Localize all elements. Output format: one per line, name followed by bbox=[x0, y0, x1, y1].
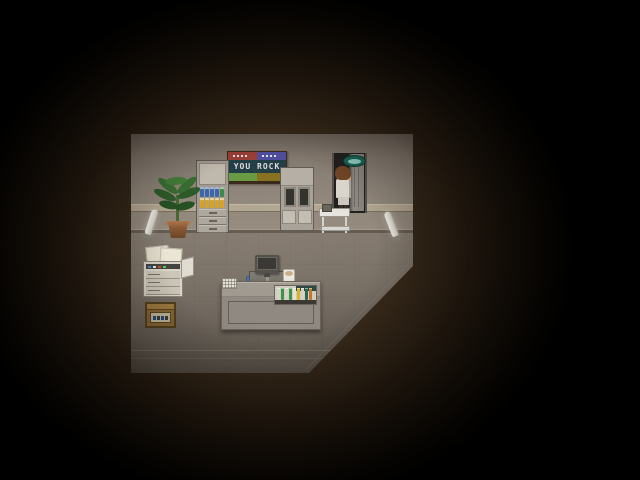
copier-btn bbox=[148, 266, 151, 268]
banner-red-cell bbox=[228, 152, 257, 160]
banner-blue-cell bbox=[257, 152, 286, 160]
shelf-drawer bbox=[199, 217, 226, 225]
banner-small-text-marks bbox=[233, 155, 249, 157]
scientist-character[interactable] bbox=[334, 166, 353, 214]
bottle bbox=[215, 187, 219, 197]
monitor-screen bbox=[257, 257, 277, 270]
game-viewport[interactable]: YOU ROCK bbox=[0, 0, 640, 480]
mug-contents bbox=[285, 271, 293, 276]
cabinet-panel bbox=[282, 210, 296, 224]
tube bbox=[277, 288, 280, 300]
bottle bbox=[215, 198, 219, 208]
cart-shelf bbox=[321, 226, 350, 231]
shelf-drawer bbox=[199, 225, 226, 233]
bottle bbox=[220, 187, 224, 197]
cabinet-lower-panels bbox=[281, 208, 313, 224]
door-sign-center bbox=[348, 159, 361, 164]
bottle-row-top bbox=[197, 186, 228, 197]
cart-item bbox=[322, 204, 332, 212]
bottle bbox=[220, 198, 224, 208]
bottle bbox=[205, 187, 209, 197]
shelf-drawer bbox=[199, 209, 226, 217]
banner-top-row bbox=[228, 152, 286, 160]
room-area: YOU ROCK bbox=[0, 0, 640, 480]
tube-row bbox=[277, 288, 312, 300]
plant-pot bbox=[167, 222, 189, 238]
display-cabinet[interactable] bbox=[280, 167, 314, 231]
floor-edge-line bbox=[131, 358, 326, 359]
cabinet-windows bbox=[281, 186, 313, 208]
copier-button-strip bbox=[146, 264, 180, 269]
medical-cart[interactable] bbox=[319, 208, 350, 235]
copier-body bbox=[143, 261, 183, 297]
floor-edge-line bbox=[131, 350, 331, 351]
tube bbox=[289, 288, 292, 300]
tube bbox=[309, 288, 312, 300]
cabinet-top-panel bbox=[281, 168, 313, 186]
bottle-row-bottom bbox=[197, 197, 228, 208]
tube bbox=[293, 288, 296, 300]
tube bbox=[281, 288, 284, 300]
monitor-stand bbox=[264, 273, 270, 277]
crate-label-mark bbox=[161, 316, 164, 320]
wooden-crate[interactable] bbox=[145, 302, 176, 328]
tube bbox=[301, 288, 304, 300]
copier-drawer bbox=[146, 287, 180, 295]
tube bbox=[297, 288, 300, 300]
shelf-top-panel bbox=[199, 163, 226, 185]
shelf-drawers bbox=[199, 209, 226, 233]
cabinet-window bbox=[284, 187, 296, 207]
cabinet-window bbox=[298, 187, 310, 207]
tube bbox=[285, 288, 288, 300]
tube bbox=[305, 288, 308, 300]
crate-label-mark bbox=[153, 316, 156, 320]
character-legs bbox=[338, 197, 349, 205]
you-rock-banner[interactable]: YOU ROCK bbox=[227, 151, 287, 184]
copier-drawers bbox=[146, 271, 180, 295]
crate-label-mark bbox=[165, 316, 168, 320]
copier-drawer bbox=[146, 279, 180, 287]
banner-bottom-row bbox=[228, 173, 286, 181]
copier-btn bbox=[158, 266, 161, 268]
banner-green-cell bbox=[228, 173, 257, 181]
crate-label bbox=[150, 312, 171, 323]
banner-small-text-marks bbox=[262, 155, 278, 157]
character-coat bbox=[336, 179, 351, 198]
character-hair bbox=[335, 166, 351, 180]
test-tube-rack[interactable] bbox=[274, 285, 317, 305]
banner-text: YOU ROCK bbox=[228, 160, 286, 173]
copier-drawer bbox=[146, 271, 180, 279]
computer-monitor[interactable] bbox=[255, 255, 279, 274]
copier-machine[interactable] bbox=[143, 245, 189, 299]
copier-btn bbox=[163, 266, 166, 268]
rack-base bbox=[275, 300, 316, 304]
bottle bbox=[210, 198, 214, 208]
potted-plant[interactable] bbox=[155, 177, 201, 239]
bottle bbox=[205, 198, 209, 208]
bottle bbox=[210, 187, 214, 197]
crate-label-mark bbox=[157, 316, 160, 320]
keypad bbox=[222, 278, 237, 289]
copier-side-tray bbox=[181, 256, 194, 278]
copier-btn bbox=[153, 266, 156, 268]
crate-lid bbox=[147, 304, 174, 310]
cabinet-panel bbox=[298, 210, 312, 224]
